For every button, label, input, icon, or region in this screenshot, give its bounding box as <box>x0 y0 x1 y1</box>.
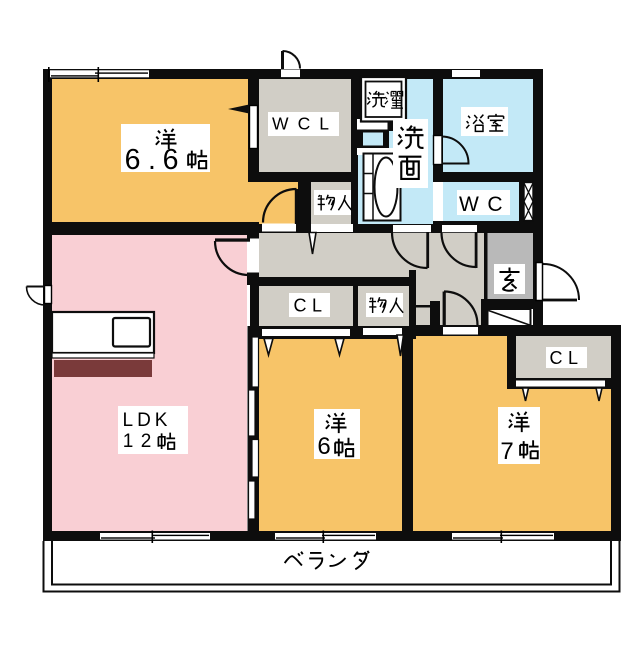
svg-text:WC: WC <box>459 193 511 216</box>
svg-text:CL: CL <box>549 348 583 368</box>
svg-text:LDK: LDK <box>123 410 172 431</box>
svg-text:6: 6 <box>317 433 330 460</box>
svg-text:.: . <box>148 144 156 176</box>
svg-text:7: 7 <box>500 438 513 465</box>
svg-text:1: 1 <box>123 431 134 452</box>
svg-text:WCL: WCL <box>272 114 338 134</box>
svg-text:CL: CL <box>293 296 327 316</box>
svg-text:2: 2 <box>141 431 152 452</box>
svg-text:6: 6 <box>125 144 141 176</box>
svg-text:6: 6 <box>163 144 179 176</box>
